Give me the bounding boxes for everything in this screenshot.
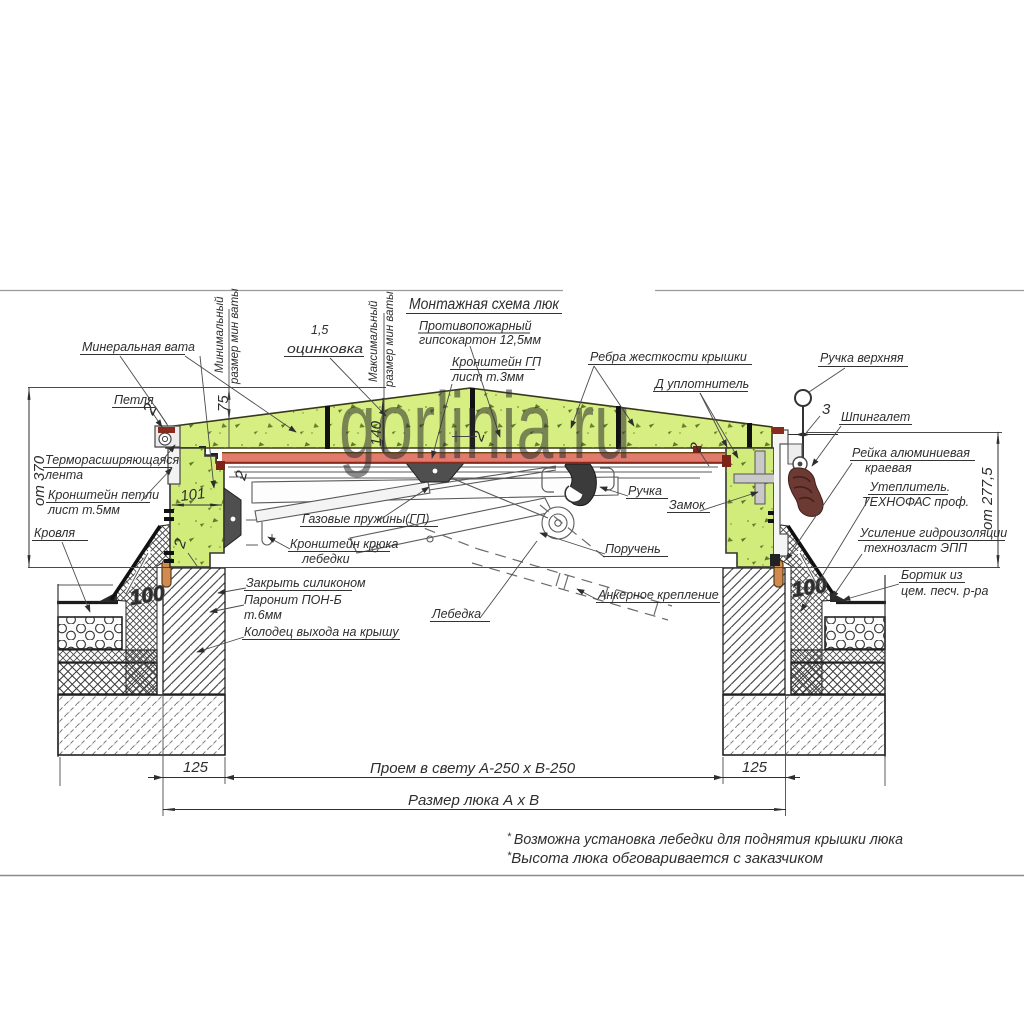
- svg-text:ТЕХНОФАС проф.: ТЕХНОФАС проф.: [862, 495, 969, 509]
- svg-text:Кронштейн крюка: Кронштейн крюка: [290, 537, 398, 551]
- svg-text:Лебедка: Лебедка: [431, 607, 481, 621]
- svg-text:Кровля: Кровля: [34, 526, 75, 540]
- svg-text:Замок: Замок: [669, 498, 706, 512]
- svg-text:Монтажная схема люк: Монтажная схема люк: [409, 296, 560, 313]
- svg-text:от 277,5: от 277,5: [979, 467, 996, 530]
- svg-text:Анкерное крепление: Анкерное крепление: [597, 588, 719, 602]
- svg-text:Закрыть силиконом: Закрыть силиконом: [246, 576, 366, 590]
- svg-text:Колодец выхода на крышу: Колодец выхода на крышу: [244, 625, 399, 639]
- svg-text:лист т.5мм: лист т.5мм: [47, 503, 120, 517]
- svg-text:Ручка: Ручка: [628, 484, 662, 498]
- svg-text:Паронит ПОН-Б: Паронит ПОН-Б: [244, 593, 342, 607]
- svg-text:Минеральная вата: Минеральная вата: [82, 340, 195, 354]
- svg-text:3: 3: [822, 401, 831, 418]
- svg-text:лебедки: лебедки: [301, 552, 350, 566]
- svg-text:Проем в свету А-250 х В-250: Проем в свету А-250 х В-250: [370, 760, 576, 777]
- svg-text:* Возможна установка лебедки д: * Возможна установка лебедки для подняти…: [507, 831, 903, 848]
- svg-text:gorlinia.ru: gorlinia.ru: [339, 373, 631, 478]
- svg-text:Ручка верхняя: Ручка верхняя: [820, 351, 904, 365]
- svg-text:оцинковка: оцинковка: [287, 342, 363, 356]
- svg-text:Бортик из: Бортик из: [901, 568, 963, 582]
- svg-text:Ребра жесткости крышки: Ребра жесткости крышки: [590, 350, 747, 364]
- svg-text:125: 125: [742, 759, 768, 776]
- svg-text:технозласт ЭПП: технозласт ЭПП: [864, 541, 968, 555]
- svg-text:краевая: краевая: [865, 461, 912, 475]
- svg-text:Максимальный: Максимальный: [368, 300, 380, 382]
- svg-text:Рейка алюминиевая: Рейка алюминиевая: [852, 446, 970, 460]
- svg-text:Кронштейн ГП: Кронштейн ГП: [452, 355, 542, 369]
- svg-text:Шпингалет: Шпингалет: [841, 410, 910, 424]
- svg-text:Противопожарный: Противопожарный: [419, 319, 532, 333]
- svg-text:Д уплотнитель: Д уплотнитель: [653, 377, 749, 391]
- svg-text:размер мин ваты: размер мин ваты: [229, 288, 241, 385]
- svg-text:т.6мм: т.6мм: [244, 608, 282, 622]
- svg-text:Поручень: Поручень: [605, 542, 661, 556]
- svg-text:Минимальный: Минимальный: [214, 296, 226, 373]
- svg-text:101: 101: [179, 485, 206, 505]
- svg-text:Утеплитель.: Утеплитель.: [869, 480, 950, 494]
- svg-text:Усиление гидроизоляции: Усиление гидроизоляции: [859, 526, 1007, 540]
- svg-text:Газовые пружины(ГП): Газовые пружины(ГП): [302, 512, 429, 526]
- svg-text:Размер люка А х В: Размер люка А х В: [408, 792, 539, 809]
- svg-text:лента: лента: [44, 468, 83, 482]
- svg-text:гипсокартон 12,5мм: гипсокартон 12,5мм: [419, 333, 541, 347]
- svg-text:*Высота люка обговаривается с: *Высота люка обговаривается с заказчиком: [507, 850, 823, 867]
- svg-text:1,5: 1,5: [311, 323, 328, 337]
- svg-text:125: 125: [183, 759, 209, 776]
- svg-text:цем. песч. р-ра: цем. песч. р-ра: [901, 584, 988, 598]
